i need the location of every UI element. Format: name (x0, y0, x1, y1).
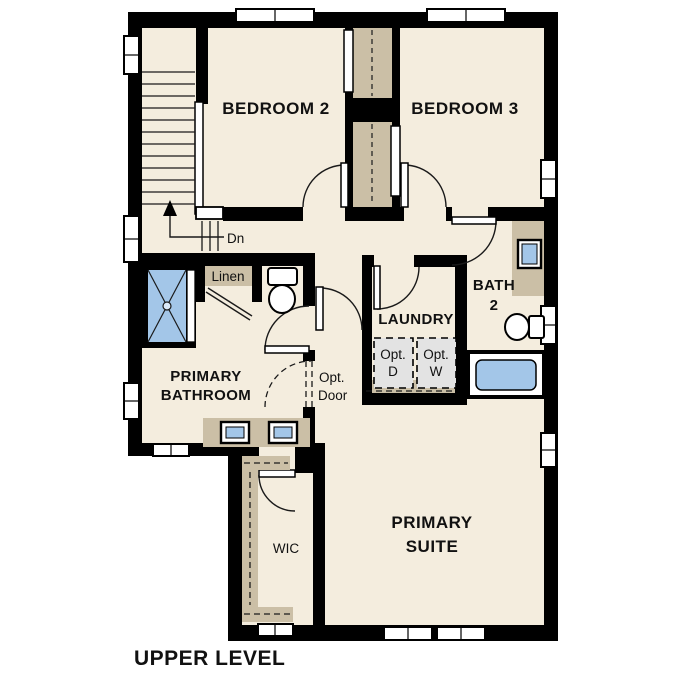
window-icon (427, 9, 505, 22)
window-icon (437, 627, 485, 640)
toilet-icon (505, 314, 544, 340)
opt-washer-label-2: W (430, 364, 443, 379)
opt-dryer-label-1: Opt. (380, 347, 406, 362)
window-icon (124, 216, 139, 262)
room-label-primary-suite-2: SUITE (406, 537, 459, 556)
shower-icon (142, 264, 196, 348)
window-icon (541, 433, 556, 467)
room-label-primary-suite-1: PRIMARY (391, 513, 472, 532)
window-icon (124, 36, 139, 74)
opt-washer-label-1: Opt. (423, 347, 449, 362)
opt-door-label-1: Opt. (319, 370, 345, 385)
window-icon (258, 624, 293, 636)
window-icon (124, 383, 139, 419)
optional-dryer-box (374, 338, 413, 388)
room-label-bath2-2: 2 (490, 297, 499, 314)
closet-door-track (391, 126, 400, 196)
linen-label: Linen (211, 269, 244, 284)
room-label-primary-bathroom-1: PRIMARY (170, 368, 241, 385)
toilet-icon (268, 268, 297, 313)
room-label-primary-bathroom-2: BATHROOM (161, 387, 251, 404)
window-icon (236, 9, 314, 22)
room-label-bedroom3: BEDROOM 3 (411, 99, 518, 118)
room-label-wic: WIC (273, 541, 299, 556)
floor-plan-canvas: BEDROOM 2 BEDROOM 3 Dn Linen PRIMARY BAT… (0, 0, 687, 687)
room-label-bath2-1: BATH (473, 277, 515, 294)
closet-door-track (344, 30, 353, 92)
double-vanity-icon (203, 418, 310, 447)
room-label-bedroom2: BEDROOM 2 (222, 99, 329, 118)
optional-washer-box (417, 338, 456, 388)
bathtub-icon (468, 352, 544, 397)
window-icon (384, 627, 432, 640)
page-title: UPPER LEVEL (134, 647, 285, 670)
opt-dryer-label-2: D (388, 364, 398, 379)
room-label-laundry: LAUNDRY (378, 311, 454, 328)
window-icon (541, 160, 556, 198)
floor-plan-page: BEDROOM 2 BEDROOM 3 Dn Linen PRIMARY BAT… (0, 0, 687, 687)
stairs-dn-label: Dn (227, 231, 244, 246)
window-icon (153, 444, 189, 456)
vanity-sink-icon (512, 221, 544, 296)
opt-door-label-2: Door (318, 388, 348, 403)
